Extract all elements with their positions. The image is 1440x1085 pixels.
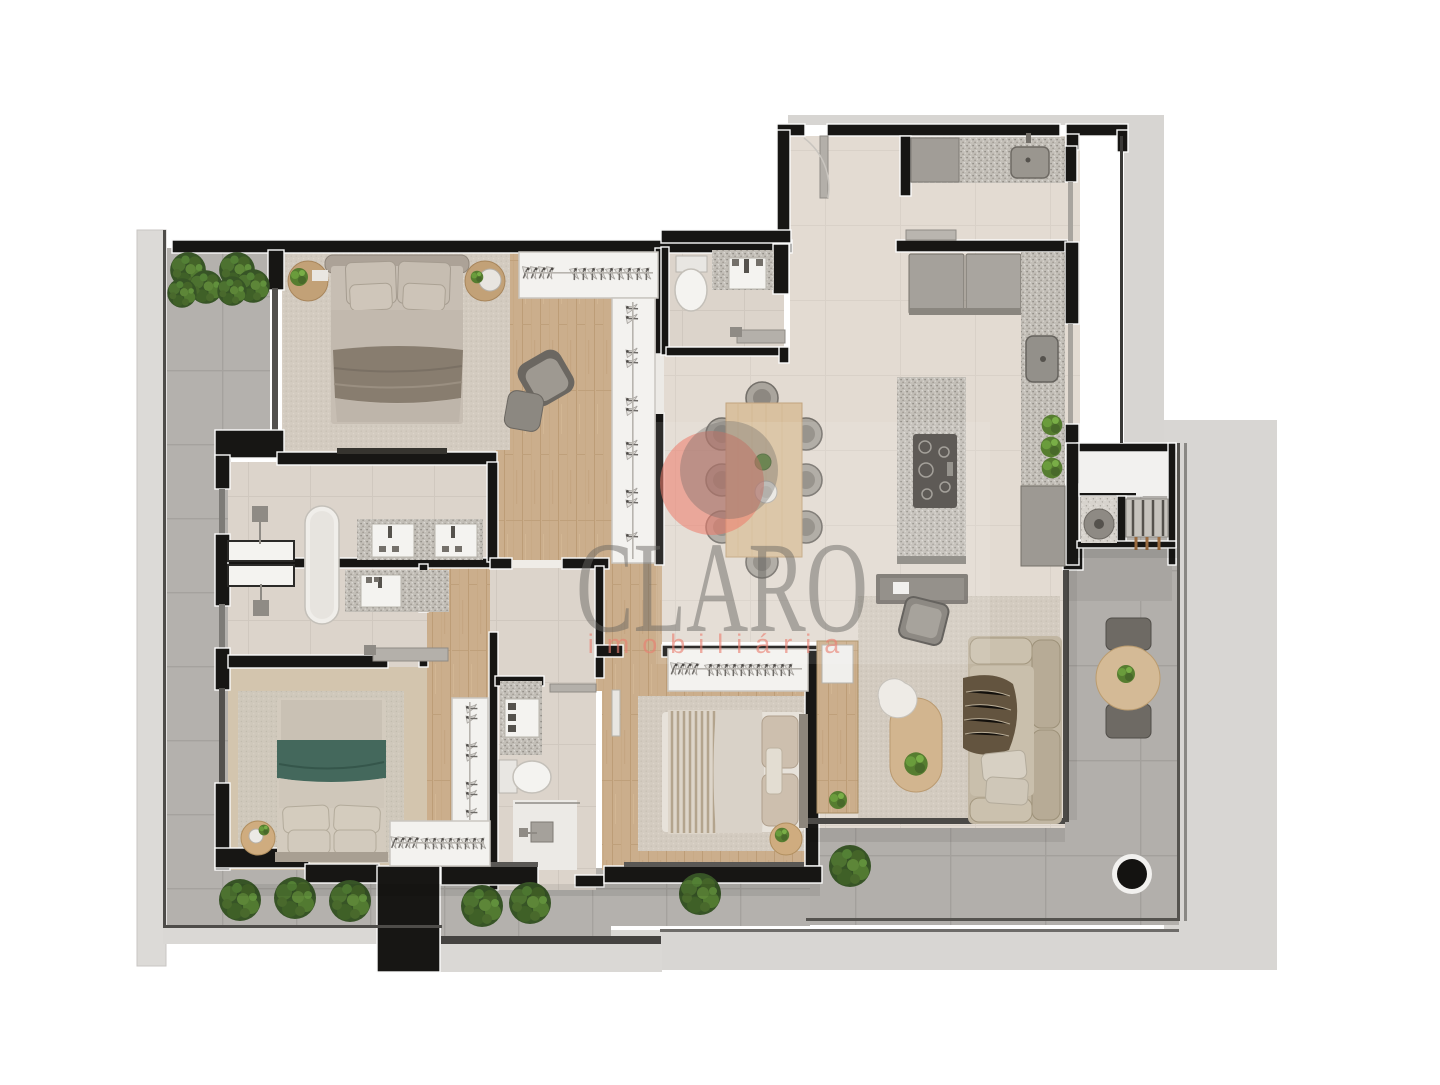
svg-text:imobiliária: imobiliária bbox=[588, 629, 853, 659]
